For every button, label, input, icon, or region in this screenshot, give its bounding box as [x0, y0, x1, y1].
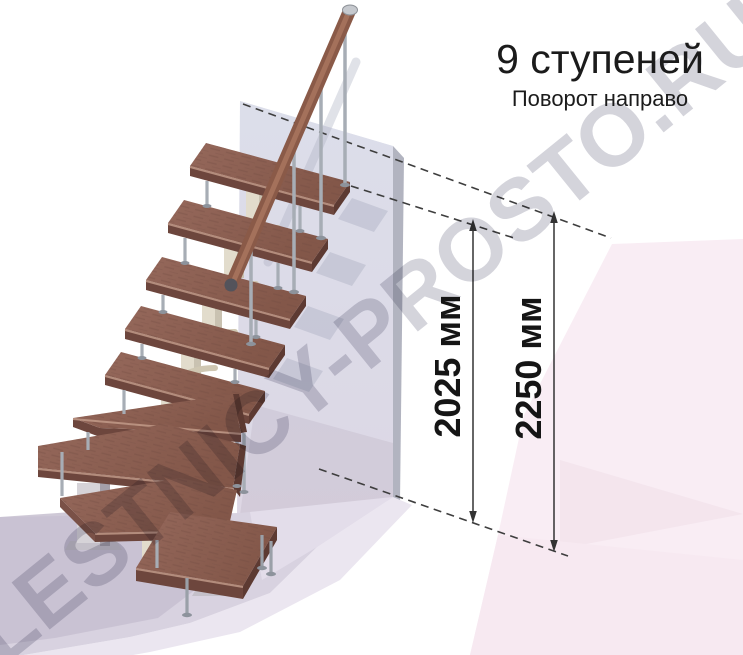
- dimension-label-stair-height: 2025 мм: [427, 294, 469, 437]
- steps-count-title: 9 ступеней: [455, 38, 743, 81]
- arrow-stair-height: [469, 219, 477, 523]
- handrail-end-cap: [225, 279, 238, 292]
- dimension-label-total-height: 2250 мм: [508, 296, 550, 439]
- handrail-top-cap: [343, 5, 358, 15]
- turn-direction-subtitle: Поворот направо: [455, 86, 743, 112]
- staircase-diagram: LESTNICY-PROSTO.RU 9 ступеней Поворот на…: [0, 0, 743, 655]
